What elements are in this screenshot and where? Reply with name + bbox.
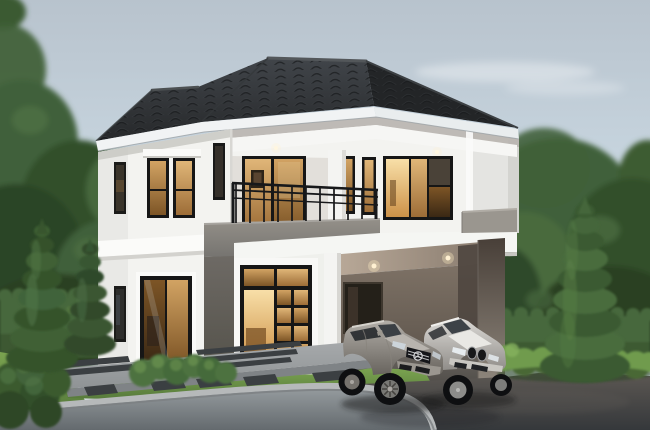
tower-side-window-lower xyxy=(114,286,126,342)
tower-side-window-upper xyxy=(114,162,126,214)
tower-front-slit-window xyxy=(213,143,225,200)
scene xyxy=(0,0,650,430)
house-exterior-rendering xyxy=(0,0,650,430)
